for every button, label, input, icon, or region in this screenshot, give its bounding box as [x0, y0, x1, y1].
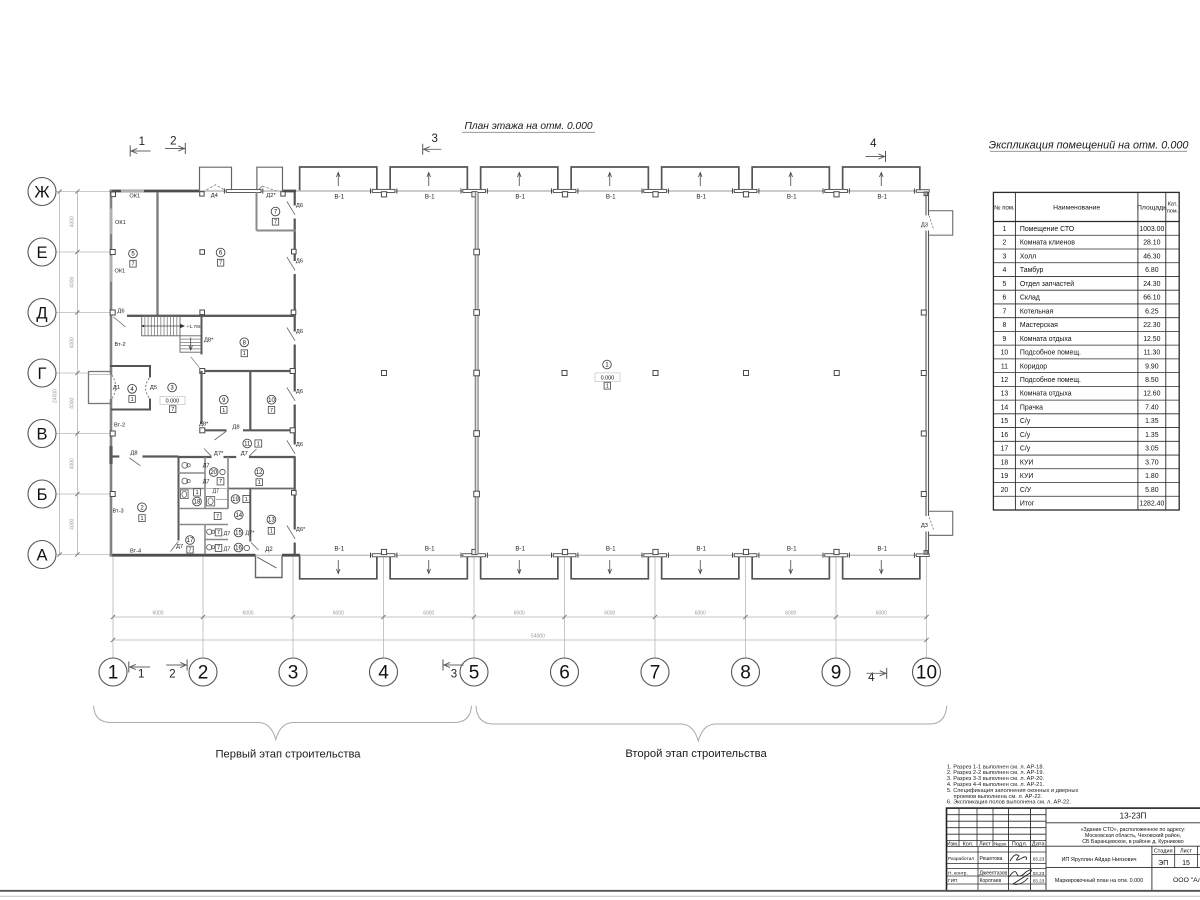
svg-text:ЭП: ЭП	[1158, 860, 1168, 867]
svg-text:В-1: В-1	[787, 194, 797, 201]
svg-text:6. Экспликация полов выполнена: 6. Экспликация полов выполнена см. л. АР…	[947, 800, 1071, 806]
svg-text:Д3: Д3	[921, 222, 928, 228]
svg-text:4000: 4000	[70, 216, 76, 227]
svg-text:Итог: Итог	[1020, 501, 1035, 508]
svg-text:С/У: С/У	[1020, 487, 1032, 494]
svg-text:Подсобное помещ.: Подсобное помещ.	[1020, 376, 1081, 384]
svg-text:КУИ: КУИ	[1020, 459, 1033, 466]
svg-text:В-1: В-1	[334, 546, 344, 553]
svg-text:28.10: 28.10	[1143, 240, 1160, 247]
svg-text:Г: Г	[38, 365, 47, 383]
svg-text:ГИП: ГИП	[948, 878, 958, 884]
svg-text:Д7: Д7	[203, 479, 210, 485]
svg-text:7: 7	[217, 546, 220, 552]
svg-text:В-1: В-1	[696, 546, 706, 553]
svg-text:7: 7	[274, 220, 277, 226]
svg-text:11.30: 11.30	[1143, 350, 1160, 357]
svg-text:Первый этап строительства: Первый этап строительства	[215, 749, 361, 761]
svg-text:18: 18	[1001, 459, 1009, 466]
svg-text:Мастерская: Мастерская	[1020, 322, 1058, 329]
svg-text:03.23: 03.23	[1033, 857, 1045, 862]
svg-text:20: 20	[1001, 487, 1009, 494]
svg-text:Экспликация помещений на отм.: Экспликация помещений на отм. 0.000	[989, 140, 1189, 152]
svg-text:С/у: С/у	[1020, 418, 1031, 425]
svg-text:Д7: Д7	[224, 531, 231, 537]
svg-text:Д7: Д7	[203, 463, 210, 469]
svg-text:17: 17	[1001, 446, 1009, 453]
svg-text:Д6: Д6	[296, 258, 303, 264]
svg-text:КУИ: КУИ	[1020, 473, 1033, 480]
svg-text:7: 7	[217, 530, 220, 536]
svg-text:03.23: 03.23	[1033, 878, 1045, 883]
svg-text:1: 1	[606, 383, 609, 389]
svg-text:1: 1	[141, 516, 144, 522]
svg-text:1: 1	[243, 351, 246, 357]
svg-text:План этажа на отм. 0.000: План этажа на отм. 0.000	[464, 121, 592, 132]
svg-text:1: 1	[139, 136, 145, 148]
svg-text:Д2*: Д2*	[266, 193, 276, 199]
svg-text:Подсобное помещ.: Подсобное помещ.	[1020, 349, 1081, 357]
svg-text:7: 7	[1002, 308, 1006, 315]
svg-text:4: 4	[1002, 267, 1006, 274]
svg-text:6000: 6000	[152, 611, 163, 617]
svg-text:66.10: 66.10	[1143, 295, 1160, 302]
svg-text:Подл.: Подл.	[1012, 842, 1028, 848]
svg-text:Дата: Дата	[1032, 842, 1046, 848]
svg-text:7: 7	[171, 407, 174, 413]
svg-text:Джеелтазов: Джеелтазов	[980, 870, 1008, 876]
svg-text:В-1: В-1	[606, 194, 616, 201]
svg-text:1: 1	[258, 480, 261, 486]
svg-text:0.000: 0.000	[601, 375, 615, 381]
svg-text:№ пом.: № пом.	[994, 205, 1015, 212]
svg-text:9: 9	[1002, 336, 1006, 343]
svg-text:Д1: Д1	[113, 385, 120, 391]
svg-text:10: 10	[268, 398, 275, 404]
svg-text:Лист: Лист	[1180, 849, 1192, 855]
svg-text:4000: 4000	[70, 518, 76, 529]
svg-text:4: 4	[870, 138, 877, 150]
svg-text:Д5: Д5	[150, 385, 157, 391]
svg-text:2: 2	[1002, 240, 1006, 247]
svg-text:7: 7	[132, 262, 135, 268]
svg-text:5: 5	[1002, 281, 1006, 288]
svg-text:13: 13	[268, 518, 275, 524]
svg-text:9: 9	[831, 663, 842, 684]
svg-text:8.50: 8.50	[1145, 377, 1159, 384]
svg-text:С/у: С/у	[1020, 432, 1031, 439]
svg-text:24.30: 24.30	[1143, 281, 1160, 288]
svg-text:Д3: Д3	[921, 523, 928, 529]
svg-text:15: 15	[235, 531, 242, 537]
svg-text:Помещение СТО: Помещение СТО	[1020, 226, 1075, 233]
svg-text:В: В	[36, 425, 47, 443]
svg-text:1282.40: 1282.40	[1139, 501, 1164, 508]
svg-text:Решетова: Решетова	[980, 856, 1003, 862]
svg-text:9.90: 9.90	[1145, 363, 1159, 370]
svg-text:1: 1	[1002, 226, 1006, 233]
svg-text:1: 1	[245, 497, 248, 503]
svg-text:Стадия: Стадия	[1154, 849, 1173, 855]
svg-text:4000: 4000	[70, 337, 76, 348]
svg-text:11: 11	[1001, 363, 1008, 370]
svg-text:Вт-2: Вт-2	[114, 423, 125, 429]
svg-text:Д6: Д6	[296, 203, 303, 209]
svg-text:7: 7	[270, 408, 273, 414]
svg-text:Лист: Лист	[979, 841, 991, 847]
svg-text:6.80: 6.80	[1145, 267, 1159, 274]
svg-text:4000: 4000	[70, 397, 76, 408]
svg-text:12.50: 12.50	[1143, 336, 1160, 343]
svg-text:0.000: 0.000	[166, 399, 180, 405]
svg-text:3: 3	[451, 669, 457, 681]
svg-text:2: 2	[169, 669, 175, 681]
svg-text:12.60: 12.60	[1143, 391, 1160, 398]
svg-text:2: 2	[198, 663, 209, 684]
svg-text:Разработал: Разработал	[948, 856, 974, 862]
svg-text:12: 12	[1001, 377, 1009, 384]
svg-text:Д2: Д2	[265, 547, 273, 553]
svg-text:Д8: Д8	[232, 425, 239, 431]
svg-text:13-23П: 13-23П	[1120, 811, 1147, 820]
svg-text:13: 13	[1001, 391, 1009, 398]
svg-text:Отдел запчастей: Отдел запчастей	[1020, 280, 1074, 288]
svg-text:№док.: №док.	[994, 841, 1007, 846]
svg-text:Комната клиенов: Комната клиенов	[1020, 240, 1075, 247]
svg-text:Д8*: Д8*	[204, 338, 214, 344]
svg-text:3.05: 3.05	[1145, 446, 1159, 453]
svg-text:46.30: 46.30	[1143, 253, 1160, 260]
svg-text:54000: 54000	[531, 634, 545, 640]
svg-text:1: 1	[222, 408, 225, 414]
svg-text:8: 8	[740, 663, 751, 684]
svg-text:Д7*: Д7*	[214, 451, 224, 457]
svg-text:1: 1	[270, 529, 273, 535]
svg-text:В-1: В-1	[787, 546, 797, 553]
svg-text:А: А	[36, 546, 47, 564]
svg-text:Д8*: Д8*	[199, 422, 209, 428]
svg-text:2: 2	[170, 136, 176, 148]
svg-text:6: 6	[1002, 295, 1006, 302]
svg-text:В-1: В-1	[515, 546, 525, 553]
svg-text:В-1: В-1	[877, 194, 887, 201]
svg-text:14: 14	[235, 513, 242, 519]
svg-text:6000: 6000	[695, 611, 706, 617]
svg-text:Н. контр.: Н. контр.	[948, 870, 968, 876]
svg-text:24000: 24000	[53, 389, 59, 403]
svg-text:6000: 6000	[333, 611, 344, 617]
svg-text:7: 7	[189, 548, 192, 554]
svg-text:4: 4	[868, 672, 875, 684]
svg-text:6000: 6000	[876, 611, 887, 617]
svg-text:12: 12	[256, 470, 263, 476]
svg-text:Б: Б	[37, 486, 48, 504]
svg-text:Маркировочный план на отм. 0.0: Маркировочный план на отм. 0.000	[1055, 877, 1143, 884]
svg-text:Котельная: Котельная	[1020, 308, 1054, 315]
svg-text:Холл: Холл	[1020, 253, 1036, 260]
svg-text:Д7: Д7	[213, 489, 220, 495]
svg-text:22.30: 22.30	[1143, 322, 1160, 329]
svg-text:В-1: В-1	[425, 546, 435, 553]
svg-text:Д7*: Д7*	[245, 530, 255, 536]
svg-text:Д6*: Д6*	[296, 527, 306, 533]
svg-text:3: 3	[1002, 253, 1006, 260]
svg-text:3.70: 3.70	[1145, 459, 1159, 466]
svg-text:7: 7	[219, 261, 222, 267]
svg-text:Тамбур: Тамбур	[1020, 266, 1044, 274]
svg-text:1.35: 1.35	[1145, 432, 1159, 439]
svg-text:10: 10	[916, 663, 937, 684]
svg-text:Вт-4: Вт-4	[130, 549, 141, 555]
svg-text:С/у: С/у	[1020, 446, 1031, 453]
svg-text:Прачка: Прачка	[1020, 404, 1043, 411]
svg-text:11: 11	[244, 442, 251, 448]
svg-text:ОК1: ОК1	[115, 269, 126, 275]
svg-text:Изм.: Изм.	[947, 841, 959, 847]
svg-text:6000: 6000	[423, 611, 434, 617]
svg-text:Наименование: Наименование	[1053, 205, 1100, 212]
svg-text:ООО "Алья: ООО "Алья	[1173, 877, 1200, 884]
svg-text:4: 4	[378, 663, 389, 684]
svg-text:5.80: 5.80	[1145, 487, 1159, 494]
svg-text:Е: Е	[36, 244, 47, 262]
svg-text:1.35: 1.35	[1145, 418, 1159, 425]
svg-text:14: 14	[1001, 404, 1009, 411]
svg-text:Кат.: Кат.	[1168, 202, 1177, 208]
svg-text:пом.: пом.	[1167, 209, 1178, 215]
svg-text:3: 3	[288, 663, 299, 684]
svg-text:8: 8	[1002, 322, 1006, 329]
svg-text:Д7: Д7	[224, 546, 231, 552]
svg-text:17: 17	[187, 538, 194, 544]
svg-text:Кол.: Кол.	[963, 841, 974, 847]
svg-text:Склад: Склад	[1020, 295, 1040, 302]
svg-text:Коротаев: Коротаев	[980, 878, 1002, 884]
svg-text:В-1: В-1	[515, 194, 525, 201]
svg-text:Второй этап строительства: Второй этап строительства	[625, 748, 767, 760]
svg-text:Д8: Д8	[130, 450, 137, 456]
svg-text:Д6: Д6	[296, 389, 303, 395]
svg-text:В-1: В-1	[696, 194, 706, 201]
svg-text:В-1: В-1	[606, 546, 616, 553]
svg-text:В-1: В-1	[334, 194, 344, 201]
svg-text:6: 6	[559, 663, 570, 684]
svg-text:4000: 4000	[70, 458, 76, 469]
svg-text:18: 18	[194, 500, 201, 506]
svg-text:6.25: 6.25	[1145, 308, 1159, 315]
svg-text:Д6: Д6	[117, 309, 124, 315]
svg-text:5: 5	[469, 663, 480, 684]
svg-text:16: 16	[1001, 432, 1009, 439]
svg-text:10: 10	[1001, 350, 1009, 357]
svg-text:Комната отдыха: Комната отдыха	[1020, 336, 1072, 343]
svg-text:Ж: Ж	[34, 183, 50, 201]
svg-text:6000: 6000	[785, 611, 796, 617]
svg-text:ОК1: ОК1	[129, 194, 140, 200]
svg-text:Вт-3: Вт-3	[113, 509, 124, 515]
svg-text:19: 19	[1001, 473, 1009, 480]
svg-text:Вт-2: Вт-2	[115, 342, 126, 348]
svg-text:15: 15	[1001, 418, 1009, 425]
svg-text:03.23: 03.23	[1033, 871, 1045, 876]
svg-text:Коридор: Коридор	[1020, 363, 1047, 370]
svg-text:6000: 6000	[604, 611, 615, 617]
svg-text:ИП Яруллин Айдар Ниязович: ИП Яруллин Айдар Ниязович	[1061, 856, 1136, 863]
svg-text:В-1: В-1	[425, 194, 435, 201]
svg-text:1: 1	[108, 663, 119, 684]
svg-text:1: 1	[257, 441, 260, 447]
svg-text:Комната отдыха: Комната отдыха	[1020, 391, 1072, 398]
svg-text:19: 19	[232, 497, 239, 503]
svg-text:Д6: Д6	[296, 442, 303, 448]
svg-text:7: 7	[650, 663, 661, 684]
svg-text:Д4: Д4	[211, 193, 219, 199]
svg-text:1: 1	[605, 362, 609, 369]
svg-text:20: 20	[210, 470, 217, 476]
svg-text:1: 1	[131, 397, 134, 403]
svg-text:ОК1: ОК1	[115, 220, 126, 226]
svg-text:1: 1	[195, 490, 198, 496]
svg-text:Д: Д	[36, 304, 47, 322]
svg-text:4000: 4000	[70, 276, 76, 287]
svg-text:В-1: В-1	[877, 546, 887, 553]
svg-text:1: 1	[138, 669, 144, 681]
svg-text:7: 7	[219, 479, 222, 485]
svg-text:3: 3	[431, 133, 437, 145]
svg-text:6000: 6000	[242, 611, 253, 617]
svg-text:Площадь: Площадь	[1137, 205, 1167, 212]
svg-text:15: 15	[1182, 860, 1190, 867]
svg-text:16: 16	[235, 546, 242, 552]
svg-text:6000: 6000	[514, 611, 525, 617]
svg-text:7: 7	[216, 514, 219, 520]
svg-text:Д7: Д7	[176, 544, 183, 550]
svg-text:1.80: 1.80	[1145, 473, 1159, 480]
svg-text:7.40: 7.40	[1145, 404, 1159, 411]
svg-text:+1.760: +1.760	[187, 324, 202, 330]
svg-text:СБ Баранцевское, в районе д. К: СБ Баранцевское, в районе д. Курниково	[1082, 838, 1184, 845]
svg-text:Д6: Д6	[296, 329, 303, 335]
svg-text:Д7: Д7	[241, 451, 248, 457]
svg-text:1003.00: 1003.00	[1139, 226, 1164, 233]
